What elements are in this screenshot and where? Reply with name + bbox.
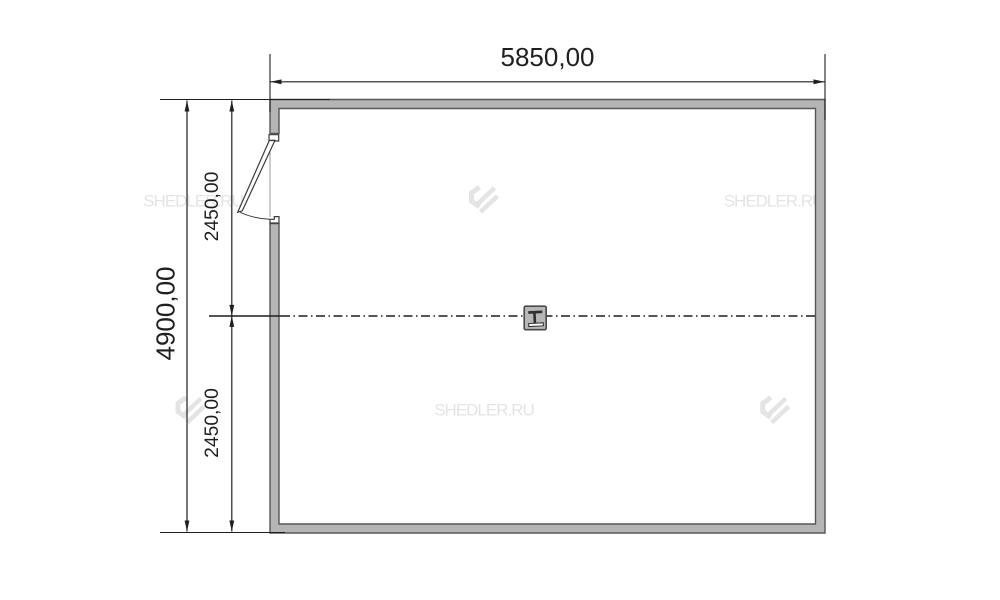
svg-text:4900,00: 4900,00 bbox=[151, 267, 181, 361]
svg-text:SHEDLER.RU: SHEDLER.RU bbox=[143, 192, 243, 211]
svg-text:2450,00: 2450,00 bbox=[202, 388, 223, 458]
svg-text:5850,00: 5850,00 bbox=[501, 42, 595, 72]
svg-text:SHEDLER.RU: SHEDLER.RU bbox=[724, 192, 824, 211]
svg-text:SHEDLER.RU: SHEDLER.RU bbox=[434, 401, 534, 420]
svg-text:2450,00: 2450,00 bbox=[202, 172, 223, 242]
